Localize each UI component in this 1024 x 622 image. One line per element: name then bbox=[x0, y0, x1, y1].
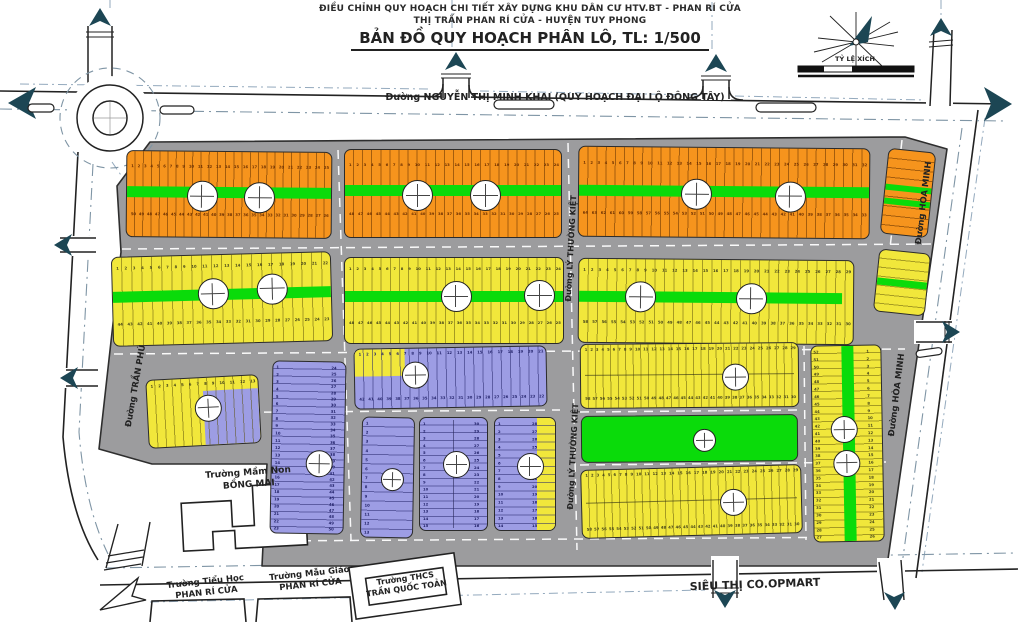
parcel-block-A1: 1234567891011121314151617181920212223242… bbox=[126, 150, 333, 239]
parcel-numbers: 123456789101112131415161718192021222324 bbox=[349, 267, 561, 271]
parcel-block-B2: 1234567891011121314151617181920212223244… bbox=[344, 257, 564, 344]
block-marker-circle bbox=[524, 280, 555, 311]
parcel-block-Y6: 1234567891011121314151617181920212223242… bbox=[580, 464, 803, 539]
parcel-block-M1: 1234567891011121314151617181920214241403… bbox=[353, 345, 547, 409]
parcel-block-PK bbox=[581, 414, 798, 463]
parcel-block-P4: 1234567891011121314282726252423222120191… bbox=[494, 417, 556, 531]
parcel-block-A4 bbox=[880, 148, 937, 239]
parcel-block-B4 bbox=[873, 248, 931, 316]
block-marker-circle bbox=[517, 453, 544, 480]
block-marker-circle bbox=[470, 180, 501, 211]
parcel-block-A2: 1234567891011121314151617181920212223244… bbox=[344, 149, 562, 238]
parcel-numbers: 1234567891011121314 bbox=[498, 422, 503, 528]
parcel-block-B3: 1234567891011121314151617181920212223242… bbox=[578, 258, 855, 345]
parcel-numbers: 123456789101112131415 bbox=[423, 422, 428, 528]
parcel-block-Y5: 1234567891011121314151617181920212223242… bbox=[580, 342, 800, 409]
planning-map: 1234567891011121314151617181920212223242… bbox=[0, 0, 1024, 622]
block-marker-circle bbox=[735, 283, 766, 314]
green-strip bbox=[345, 185, 561, 196]
parcel-block-W1: 12345678910111213 bbox=[145, 374, 261, 449]
green-strip bbox=[127, 186, 331, 199]
block-marker-circle bbox=[722, 363, 749, 390]
parcel-numbers: 4847464544434241403938373635343332313029… bbox=[349, 321, 561, 325]
parcel-block-P3: 1234567891011121314153029282726252423222… bbox=[419, 417, 488, 531]
green-strip bbox=[579, 291, 842, 304]
parcel-block-P2: 12345678910111213 bbox=[360, 417, 415, 539]
parcel-blocks-layer: 1234567891011121314151617181920212223242… bbox=[0, 0, 1024, 622]
block-marker-circle bbox=[187, 181, 218, 212]
parcel-block-A3: 1234567891011121314151617181920212223242… bbox=[578, 146, 871, 240]
block-marker-circle bbox=[441, 281, 472, 312]
parcel-block-Y7: 5251504948474645444342414039383736353433… bbox=[810, 344, 884, 542]
block-marker-circle bbox=[693, 429, 716, 452]
parcel-numbers: 4847464544434241403938373635343332313029… bbox=[349, 212, 559, 216]
parcel-block-P1: 1234567891011121314151617181920212223242… bbox=[269, 360, 346, 534]
parcel-numbers: 123456789101112131415161718192021222324 bbox=[349, 163, 559, 167]
block-marker-circle bbox=[833, 449, 860, 476]
parcel-block-B1: 1234567891011121314151617181920212244434… bbox=[111, 251, 333, 347]
parcel-numbers: 302928272625242322212019181716 bbox=[474, 422, 479, 528]
block-marker-circle bbox=[775, 181, 806, 212]
block-marker-circle bbox=[306, 450, 333, 477]
block-marker-circle bbox=[380, 468, 403, 491]
block-marker-circle bbox=[256, 273, 288, 305]
